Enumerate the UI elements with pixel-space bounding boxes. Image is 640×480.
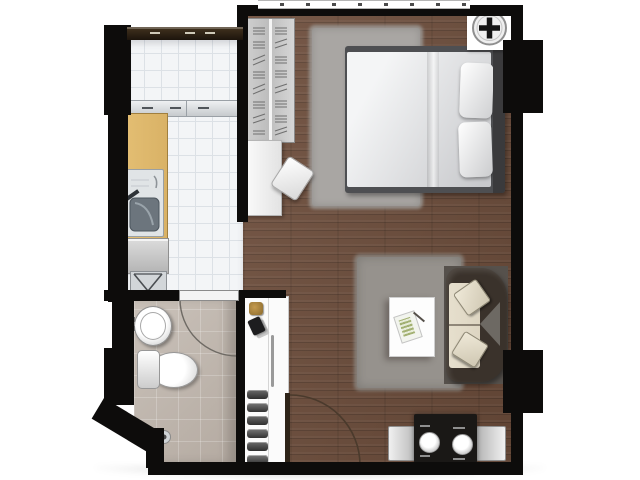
top-window-band [258, 0, 470, 9]
window-dash [205, 32, 215, 34]
wall-kitchen-bedroom-divider [237, 15, 248, 222]
cabinet-door-handle [271, 335, 274, 387]
wall-bottom [148, 462, 523, 475]
sofa-back-blanket [480, 302, 500, 346]
wall-shoe-cabinet-cap [242, 290, 286, 298]
shoe-row [247, 390, 268, 399]
magazine-cover-art [399, 317, 416, 337]
plate [419, 432, 440, 453]
cutlery-mark [420, 455, 430, 457]
sofa-seat-divider [449, 324, 480, 326]
pillow [459, 62, 494, 118]
wall-kitchen-bathroom-divider [104, 290, 180, 301]
window-dash [150, 32, 160, 34]
cutlery-mark [420, 425, 430, 427]
shoe-row [247, 429, 268, 438]
pillow [458, 121, 493, 177]
wardrobe-clothes-icon [248, 19, 294, 142]
wall-bathroom-bottom-stub [146, 428, 164, 468]
toilet-tank [137, 350, 160, 389]
kitchen-top-wall-band [127, 27, 243, 40]
shoe-cabinet [244, 296, 289, 467]
sofa [446, 268, 507, 382]
bathroom-door-leaf [179, 290, 239, 301]
shoe-row [247, 403, 268, 412]
wall-bathroom-left-upper [112, 301, 134, 353]
basin-inner-rim [140, 312, 166, 340]
coffee-table [389, 297, 435, 357]
duvet-fold-line [427, 52, 439, 187]
double-bed [345, 46, 505, 193]
shoe-row [247, 416, 268, 425]
washbasin [134, 306, 172, 346]
cabinet-handle [198, 107, 209, 109]
pillar-bottom-right [503, 350, 543, 413]
cutlery-mark [453, 458, 465, 460]
cabinet-handle [142, 107, 153, 109]
cabinet-handle [170, 107, 181, 109]
shoe-row [247, 442, 268, 451]
cutlery-mark [453, 427, 465, 429]
window-tick-marks [258, 3, 470, 6]
dining-table [414, 414, 477, 463]
wardrobe [247, 18, 295, 143]
floor-plan [0, 0, 640, 480]
dining-chair-right [476, 426, 506, 461]
cabinet-divider [186, 101, 187, 116]
window-dash [185, 32, 195, 34]
sink-unit [125, 169, 164, 237]
wall-hallway-divider [236, 290, 245, 465]
pillar-top-right [503, 40, 543, 113]
bag-accessory [249, 302, 263, 315]
faucet-icon [126, 170, 163, 236]
cabinet-door-divider [268, 297, 269, 466]
plate [452, 434, 473, 455]
wall-kitchen-left [108, 112, 128, 302]
wall-bathroom-left-lower [104, 348, 134, 405]
